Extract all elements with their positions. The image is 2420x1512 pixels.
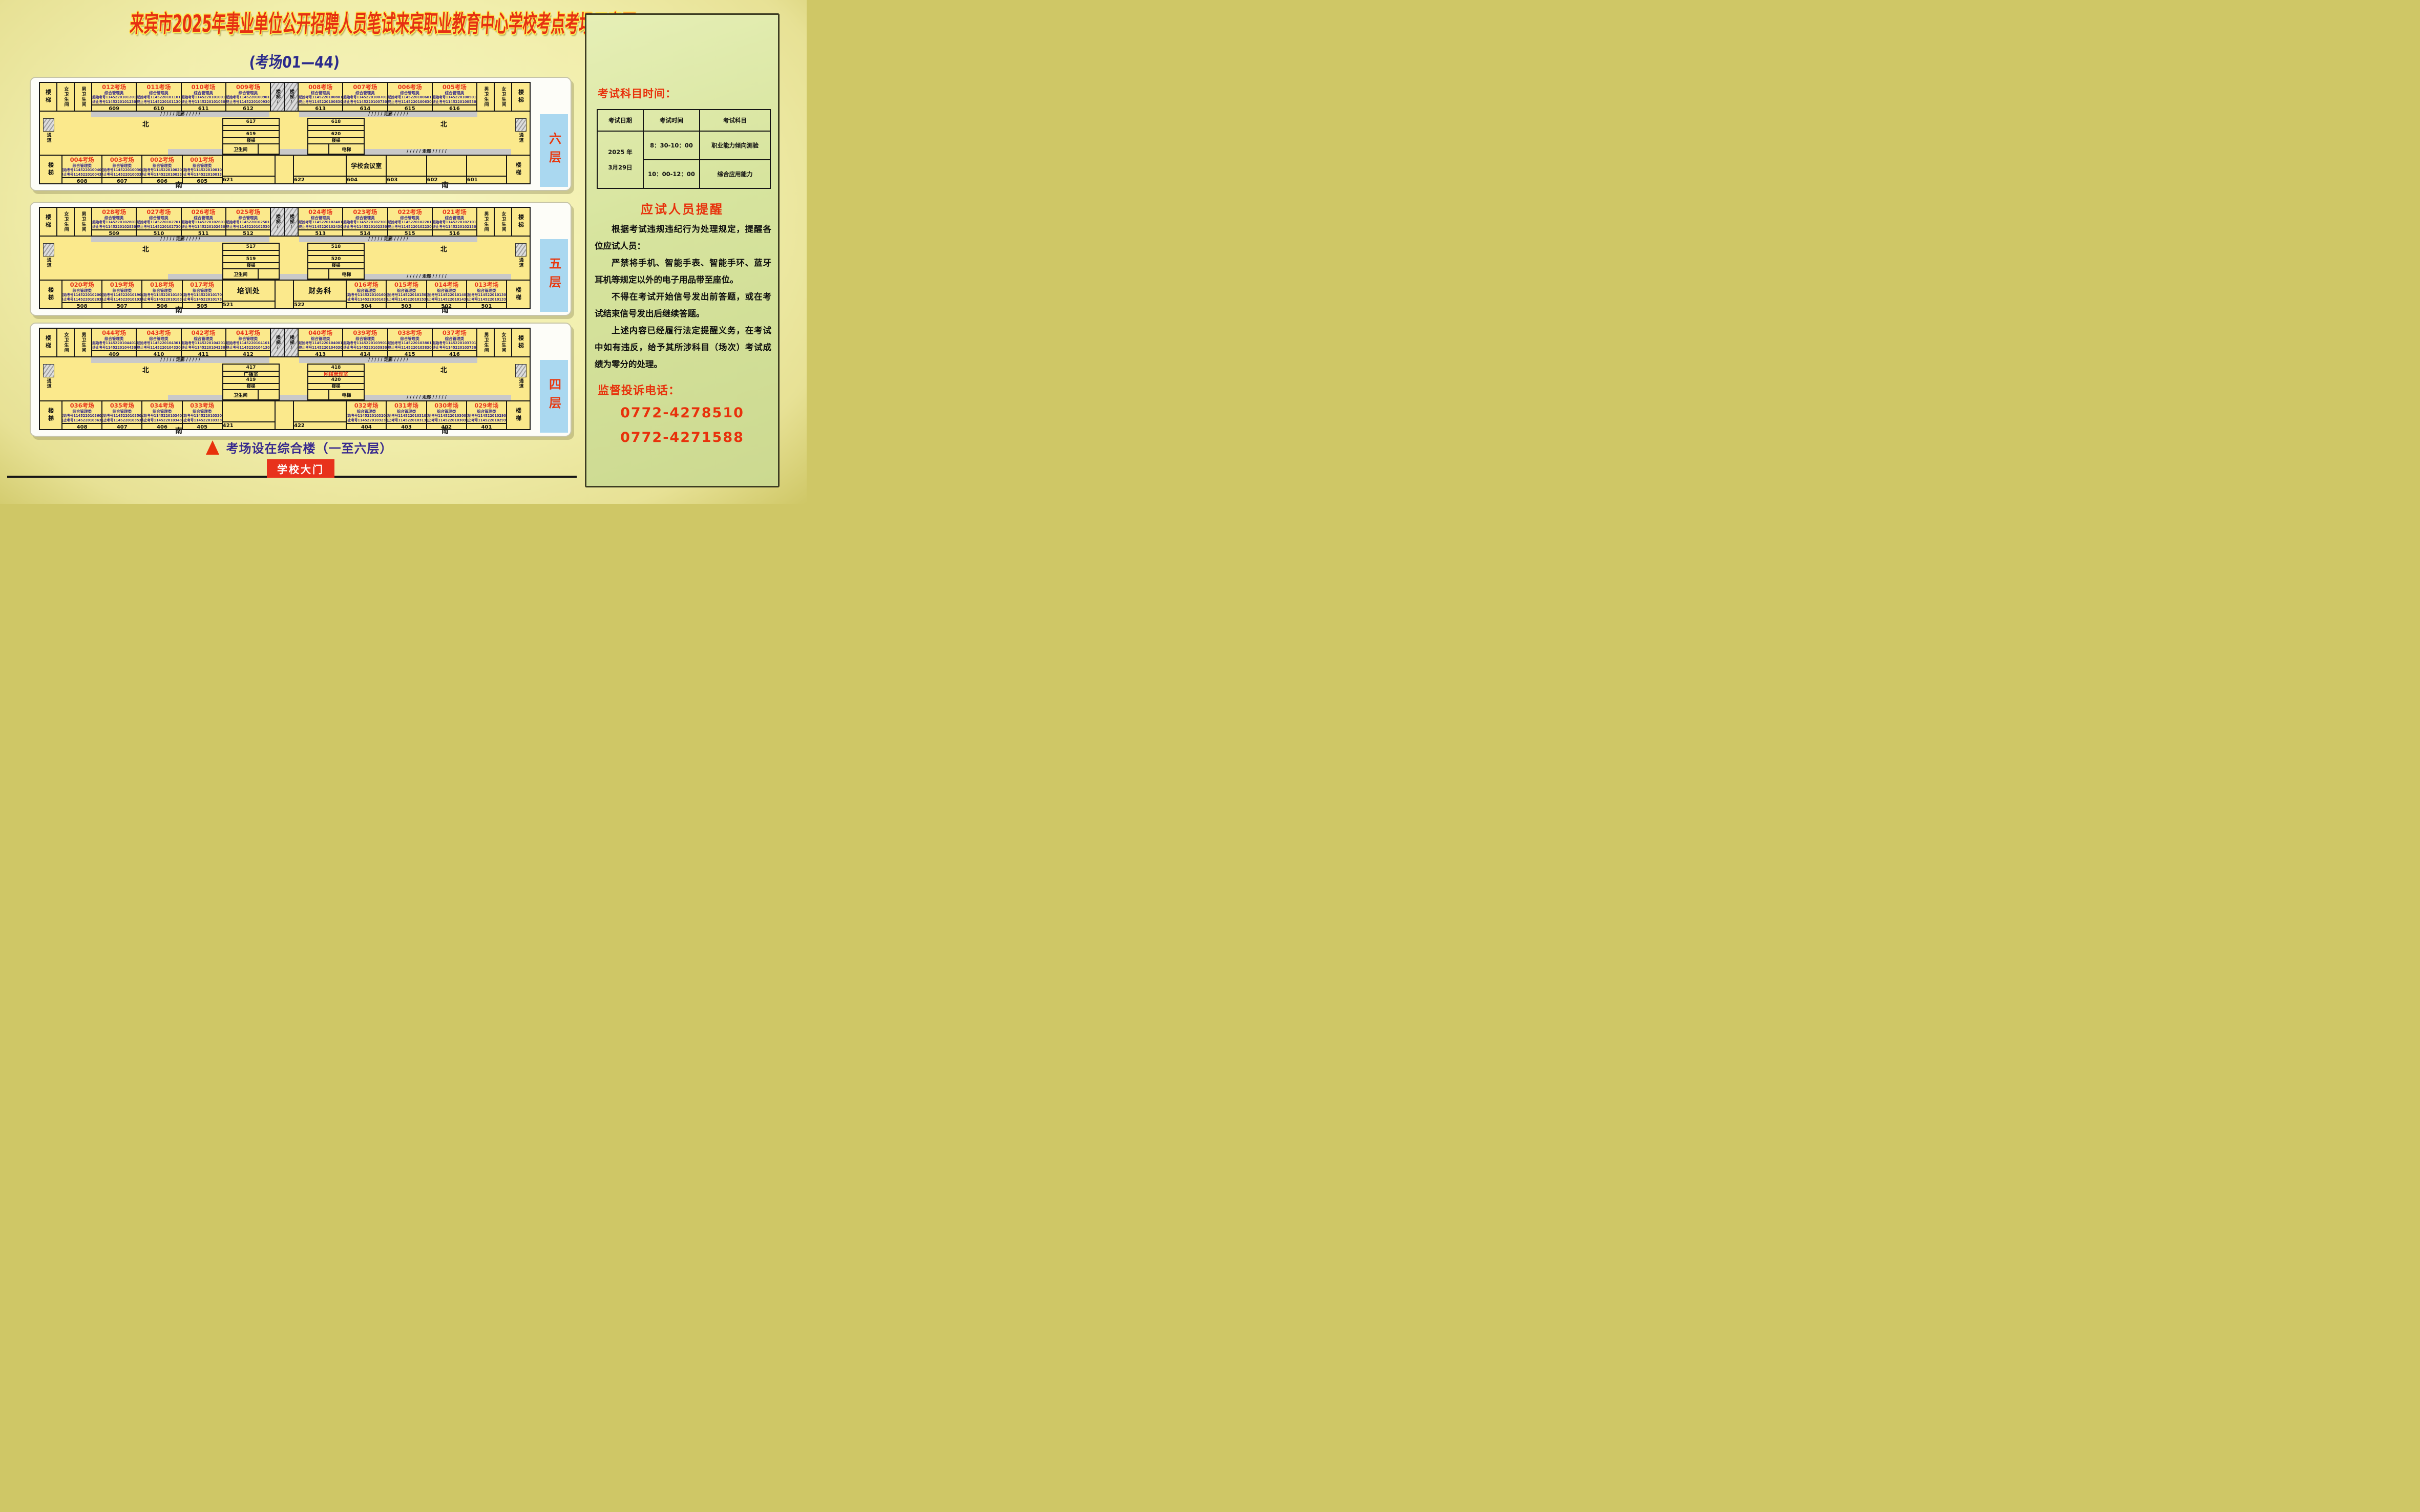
interior-block: 417广播室419楼梯卫生间 [222, 364, 280, 400]
exam-room-cell: 004考场综合管理类起始考号1145220100401终止考号114522010… [62, 156, 102, 183]
room-start-number: 起始考号1145220103201 [347, 414, 387, 418]
room-title: 032考场 [354, 402, 378, 409]
room-end-number: 终止考号1145220100530 [433, 100, 476, 104]
room-start-number: 起始考号1145220102501 [226, 220, 270, 225]
passage-cell: 通道 [40, 364, 57, 389]
exam-room-cell: 042考场综合管理类起始考号1145220104201终止考号114522010… [182, 329, 226, 356]
corridor-strip: / / / / / 走廊 / / / / / [299, 357, 477, 363]
stairs-hatch-cell-label: 楼梯/ [275, 214, 280, 230]
label-room-cell: 601 [467, 156, 507, 183]
elevator-box: 电梯 [328, 389, 365, 399]
room-end-number: 终止考号1145220104130 [226, 346, 270, 350]
room-label: 财务科 [294, 281, 346, 301]
female-wc-cell: 女卫生间 [495, 83, 512, 111]
room-start-number: 起始考号1145220100701 [343, 95, 387, 100]
exam-room-cell: 027考场综合管理类起始考号1145220102701终止考号114522010… [137, 208, 181, 236]
room-title: 023考场 [353, 209, 377, 216]
room-category: 综合管理类 [445, 91, 465, 95]
room-category: 综合管理类 [355, 91, 375, 95]
exam-room-cell: 043考场综合管理类起始考号1145220104301终止考号114522010… [137, 329, 181, 356]
room-title: 010考场 [192, 84, 216, 91]
room-label [223, 156, 275, 176]
room-label: 学校会议室 [347, 156, 386, 176]
room-end-number: 终止考号1145220101930 [102, 297, 142, 302]
female-wc-cell: 女卫生间 [57, 329, 75, 356]
reminder-paragraph: 严禁将手机、智能手表、智能手环、蓝牙耳机等规定以外的电子用品带至座位。 [595, 254, 771, 288]
passage-label: 通道 [518, 378, 524, 389]
bottom-room-row: 楼梯004考场综合管理类起始考号1145220100401终止考号1145220… [40, 155, 530, 183]
room-title: 037考场 [443, 330, 467, 336]
room-title: 025考场 [236, 209, 260, 216]
room-start-number: 起始考号1145220102801 [92, 220, 136, 225]
exam-room-cell: 012考场综合管理类起始考号1145220101201终止考号114522010… [92, 83, 137, 111]
stairs-cell-label: 楼梯 [46, 214, 51, 229]
stairs-cell-label: 楼梯 [516, 408, 521, 423]
room-number-strip: 504 [347, 302, 386, 308]
female-wc-cell-label: 女卫生间 [64, 332, 68, 353]
label-room-cell: 602 [427, 156, 467, 183]
exam-room-cell: 007考场综合管理类起始考号1145220100701终止考号114522010… [343, 83, 388, 111]
room-category: 综合管理类 [194, 336, 213, 341]
exam-room-cell: 030考场综合管理类起始考号1145220103001终止考号114522010… [427, 401, 467, 429]
passage-cell: 通道 [40, 118, 57, 143]
building-outline: 楼梯女卫生间男卫生间028考场综合管理类起始考号1145220102801终止考… [39, 207, 531, 309]
room-number-strip: 410 [137, 350, 180, 356]
floor-band: 楼梯女卫生间男卫生间012考场综合管理类起始考号1145220101201终止考… [30, 77, 572, 191]
room-title: 012考场 [102, 84, 126, 91]
room-number-strip: 522 [294, 301, 346, 308]
bottom-room-row: 楼梯036考场综合管理类起始考号1145220103601终止考号1145220… [40, 400, 530, 429]
room-end-number: 终止考号1145220100330 [102, 173, 142, 177]
room-title: 041考场 [236, 330, 260, 336]
room-label: 培训处 [223, 281, 275, 301]
exam-room-cell: 018考场综合管理类起始考号1145220101801终止考号114522010… [142, 281, 182, 308]
male-wc-cell: 男卫生间 [477, 329, 495, 356]
stairs-hatch-cell: 楼梯/ [271, 329, 285, 356]
exam-room-cell: 039考场综合管理类起始考号1145220103901终止考号114522010… [343, 329, 388, 356]
passage-cell: 通道 [513, 243, 529, 268]
room-label [294, 401, 346, 421]
exam-date-cell: 2025 年 3月29日 [597, 131, 643, 188]
room-number-strip: 608 [62, 177, 101, 183]
room-end-number: 终止考号1145220104030 [299, 346, 342, 350]
schedule-title: 考试科目时间： [598, 86, 677, 101]
stairs-cell: 楼梯 [512, 208, 530, 236]
room-category: 综合管理类 [113, 163, 132, 168]
exam-room-cell: 025考场综合管理类起始考号1145220102501终止考号114522010… [226, 208, 271, 236]
south-label: 南 [441, 425, 449, 436]
room-end-number: 终止考号1145220103130 [387, 418, 427, 423]
stairs-cell-label: 楼梯 [46, 335, 51, 350]
block-room-number: 620 [308, 131, 364, 138]
room-number-strip: 607 [102, 177, 141, 183]
room-category: 综合管理类 [400, 91, 419, 95]
room-number-strip: 515 [388, 229, 432, 236]
room-end-number: 终止考号1145220102530 [226, 225, 270, 229]
exam-room-cell: 038考场综合管理类起始考号1145220103801终止考号114522010… [388, 329, 433, 356]
room-number-strip: 407 [102, 423, 141, 429]
room-title: 020考场 [70, 282, 94, 288]
room-end-number: 终止考号1145220101430 [427, 297, 467, 302]
room-end-number: 终止考号1145220103630 [62, 418, 102, 423]
label-room-cell: 422 [294, 401, 347, 429]
room-number-strip: 405 [183, 423, 222, 429]
room-title: 015考场 [394, 282, 418, 288]
room-number-strip: 409 [92, 350, 136, 356]
passage-cell: 通道 [40, 243, 57, 268]
room-title: 001考场 [190, 157, 214, 163]
room-start-number: 起始考号1145220101201 [92, 95, 136, 100]
room-start-number: 起始考号1145220103001 [427, 414, 467, 418]
header-exam-subject: 考试科目 [700, 110, 770, 131]
room-number-strip: 401 [467, 423, 506, 429]
room-start-number: 起始考号1145220103601 [62, 414, 102, 418]
room-end-number: 终止考号1145220103530 [102, 418, 142, 423]
block-mid-label [308, 251, 364, 256]
passage-label: 通道 [46, 258, 52, 268]
room-number-strip: 411 [182, 350, 225, 356]
room-category: 综合管理类 [104, 216, 124, 220]
room-end-number: 终止考号1145220103230 [347, 418, 387, 423]
room-end-number: 终止考号1145220103730 [433, 346, 476, 350]
info-panel: 考试科目时间： 考试日期 考试时间 考试科目 2025 年 3月29日 8：30… [585, 13, 780, 487]
block-corner-row: 卫生间 [223, 269, 279, 279]
room-number-strip: 412 [226, 350, 270, 356]
room-title: 018考场 [150, 282, 174, 288]
open-gap-cell [276, 401, 294, 429]
room-start-number: 起始考号1145220104301 [137, 341, 180, 346]
header-exam-date: 考试日期 [597, 110, 643, 131]
floor-number-bar: 五层 [540, 239, 568, 312]
room-title: 028考场 [102, 209, 126, 216]
room-title: 009考场 [236, 84, 260, 91]
exam-room-cell: 021考场综合管理类起始考号1145220102101终止考号114522010… [433, 208, 477, 236]
room-end-number: 终止考号1145220100830 [299, 100, 342, 104]
room-start-number: 起始考号1145220104201 [182, 341, 225, 346]
block-room-number: 420 [308, 377, 364, 384]
room-end-number: 终止考号1145220100230 [142, 173, 182, 177]
room-start-number: 起始考号1145220102901 [467, 414, 507, 418]
room-start-number: 起始考号1145220100101 [183, 168, 223, 173]
passage-hatch [515, 364, 527, 377]
exam-room-cell: 031考场综合管理类起始考号1145220103101终止考号114522010… [387, 401, 427, 429]
room-number-strip: 611 [182, 104, 225, 111]
south-label: 南 [175, 180, 182, 190]
room-number-strip: 610 [137, 104, 180, 111]
room-end-number: 终止考号1145220100630 [388, 100, 432, 104]
exam-room-cell: 037考场综合管理类起始考号1145220103701终止考号114522010… [433, 329, 477, 356]
room-category: 综合管理类 [193, 288, 212, 293]
room-category: 综合管理类 [239, 336, 258, 341]
room-end-number: 终止考号1145220102730 [137, 225, 180, 229]
male-wc-cell-label: 男卫生间 [81, 87, 86, 107]
exam-room-cell: 008考场综合管理类起始考号1145220100801终止考号114522010… [299, 83, 343, 111]
male-wc-cell-label: 男卫生间 [483, 87, 488, 107]
room-number-strip: 614 [343, 104, 387, 111]
room-number-strip: 603 [387, 176, 426, 183]
room-category: 综合管理类 [311, 91, 330, 95]
room-title: 027考场 [146, 209, 171, 216]
reminder-title: 应试人员提醒 [586, 199, 778, 217]
room-number-strip: 507 [102, 302, 141, 308]
female-wc-cell-label: 女卫生间 [64, 211, 68, 232]
room-category: 综合管理类 [104, 336, 124, 341]
room-category: 综合管理类 [311, 336, 330, 341]
middle-zone: / / / / / 走廊 / / / / // / / / / 走廊 / / /… [40, 237, 530, 280]
room-title: 036考场 [70, 402, 94, 409]
room-end-number: 终止考号1145220102630 [182, 225, 225, 229]
room-start-number: 起始考号1145220101701 [183, 293, 223, 297]
complaint-phone-title: 监督投诉电话： [598, 381, 680, 398]
room-title: 040考场 [308, 330, 332, 336]
exam-subject-cell: 综合应用能力 [700, 160, 770, 188]
label-room-cell: 603 [387, 156, 427, 183]
room-number-strip: 601 [467, 176, 506, 183]
room-category: 综合管理类 [193, 163, 212, 168]
stairs-cell-label: 楼梯 [518, 89, 524, 104]
room-label [223, 401, 275, 421]
north-label: 北 [440, 365, 447, 374]
label-room-cell: 财务科522 [294, 281, 347, 308]
room-category: 综合管理类 [400, 336, 419, 341]
stairs-cell-label: 楼梯 [516, 287, 521, 302]
bottom-room-row: 楼梯020考场综合管理类起始考号1145220102001终止考号1145220… [40, 280, 530, 308]
stairs-cell-label: 楼梯 [518, 214, 524, 229]
male-wc-cell: 男卫生间 [477, 83, 495, 111]
top-room-row: 楼梯女卫生间男卫生间012考场综合管理类起始考号1145220101201终止考… [40, 83, 530, 112]
male-wc-cell-label: 男卫生间 [81, 211, 86, 232]
passage-label: 通道 [518, 133, 524, 143]
room-title: 030考场 [434, 402, 458, 409]
floor-number-bar: 六层 [540, 114, 568, 187]
room-start-number: 起始考号1145220101501 [387, 293, 427, 297]
room-category: 综合管理类 [149, 336, 169, 341]
exam-room-cell: 032考场综合管理类起始考号1145220103201终止考号114522010… [347, 401, 387, 429]
exam-room-cell: 011考场综合管理类起始考号1145220101101终止考号114522010… [137, 83, 181, 111]
room-start-number: 起始考号1145220103501 [102, 414, 142, 418]
room-start-number: 起始考号1145220102701 [137, 220, 180, 225]
exam-venue-poster: 来宾市2025年事业单位公开招聘人员笔试来宾职业教育中心学校考点考场示意图 (考… [0, 0, 807, 504]
passage-label: 通道 [46, 133, 52, 143]
room-number-strip: 612 [226, 104, 270, 111]
room-end-number: 终止考号1145220104430 [92, 346, 136, 350]
room-title: 021考场 [443, 209, 467, 216]
room-title: 022考场 [398, 209, 422, 216]
stairs-hatch-cell-label: 楼梯/ [275, 89, 280, 105]
interior-block: 517519楼梯卫生间 [222, 243, 280, 280]
room-start-number: 起始考号1145220101601 [347, 293, 387, 297]
exam-room-cell: 035考场综合管理类起始考号1145220103501终止考号114522010… [102, 401, 142, 429]
room-end-number: 终止考号1145220102030 [62, 297, 102, 302]
room-number-strip: 613 [299, 104, 342, 111]
stairs-cell-label: 楼梯 [48, 287, 54, 302]
room-title: 033考场 [190, 402, 214, 409]
room-start-number: 起始考号1145220103701 [433, 341, 476, 346]
stairs-cell-label: 楼梯 [48, 162, 54, 177]
female-wc-cell: 女卫生间 [495, 329, 512, 356]
block-corner-row: 卫生间 [223, 390, 279, 399]
block-room-number: 618 [308, 119, 364, 126]
room-end-number: 终止考号1145220100430 [62, 173, 102, 177]
room-start-number: 起始考号1145220104101 [226, 341, 270, 346]
floor-band: 楼梯女卫生间男卫生间044考场综合管理类起始考号1145220104401终止考… [30, 323, 572, 437]
passage-label: 通道 [46, 378, 52, 389]
stairs-cell: 楼梯 [512, 83, 530, 111]
exam-room-cell: 044考场综合管理类起始考号1145220104401终止考号114522010… [92, 329, 137, 356]
room-start-number: 起始考号1145220101901 [102, 293, 142, 297]
block-corner-row: 卫生间 [223, 144, 279, 154]
exam-room-cell: 028考场综合管理类起始考号1145220102801终止考号114522010… [92, 208, 137, 236]
north-label: 北 [142, 119, 149, 129]
room-label [427, 156, 466, 176]
room-number-strip: 415 [388, 350, 432, 356]
passage-hatch [515, 243, 527, 257]
room-number-strip: 514 [343, 229, 387, 236]
exam-room-cell: 029考场综合管理类起始考号1145220102901终止考号114522010… [467, 401, 507, 429]
exam-room-cell: 010考场综合管理类起始考号1145220101001终止考号114522010… [182, 83, 226, 111]
room-category: 综合管理类 [149, 216, 169, 220]
room-category: 综合管理类 [355, 216, 375, 220]
room-start-number: 起始考号1145220103301 [183, 414, 223, 418]
passage-label: 通道 [518, 258, 524, 268]
north-label: 北 [142, 244, 149, 253]
room-category: 综合管理类 [239, 91, 258, 95]
room-end-number: 终止考号1145220103430 [142, 418, 182, 423]
room-category: 综合管理类 [153, 409, 172, 414]
room-start-number: 起始考号1145220103101 [387, 414, 427, 418]
building-outline: 楼梯女卫生间男卫生间044考场综合管理类起始考号1145220104401终止考… [39, 328, 531, 430]
room-end-number: 终止考号1145220102330 [343, 225, 387, 229]
female-wc-cell-label: 女卫生间 [501, 332, 506, 353]
exam-room-cell: 005考场综合管理类起始考号1145220100501终止考号114522010… [433, 83, 477, 111]
corridor-strip: / / / / / 走廊 / / / / / [91, 357, 269, 363]
room-title: 038考场 [398, 330, 422, 336]
exam-room-cell: 020考场综合管理类起始考号1145220102001终止考号114522010… [62, 281, 102, 308]
open-gap-cell [276, 156, 294, 183]
stairs-cell: 楼梯 [40, 281, 62, 308]
room-start-number: 起始考号1145220100601 [388, 95, 432, 100]
room-category: 综合管理类 [194, 216, 213, 220]
passage-hatch [43, 118, 54, 132]
exam-room-cell: 026考场综合管理类起始考号1145220102601终止考号114522010… [182, 208, 226, 236]
middle-zone: / / / / / 走廊 / / / / // / / / / 走廊 / / /… [40, 357, 530, 400]
room-number-strip: 403 [387, 423, 426, 429]
exam-room-cell: 034考场综合管理类起始考号1145220103401终止考号114522010… [142, 401, 182, 429]
room-number-strip: 604 [347, 176, 386, 183]
room-category: 综合管理类 [72, 409, 92, 414]
room-category: 综合管理类 [72, 163, 92, 168]
stairs-hatch-cell-label: 楼梯/ [289, 335, 293, 351]
room-number-strip: 416 [433, 350, 476, 356]
exam-room-cell: 006考场综合管理类起始考号1145220100601终止考号114522010… [388, 83, 433, 111]
corridor-strip: / / / / / 走廊 / / / / / [342, 274, 511, 280]
floor-number-label: 五层 [548, 257, 560, 294]
female-wc-cell-label: 女卫生间 [501, 211, 506, 232]
exam-time-cell: 8：30-10：00 [643, 131, 700, 160]
stairs-cell-label: 楼梯 [516, 162, 521, 177]
room-title: 007考场 [353, 84, 377, 91]
room-title: 003考场 [110, 157, 134, 163]
room-start-number: 起始考号1145220100401 [62, 168, 102, 173]
room-number-strip: 510 [137, 229, 180, 236]
room-end-number: 终止考号1145220102130 [433, 225, 476, 229]
room-number-strip: 508 [62, 302, 101, 308]
table-row: 2025 年 3月29日 8：30-10：00 职业能力倾向测验 [597, 131, 770, 160]
block-mid-label [223, 251, 279, 256]
room-title: 008考场 [308, 84, 332, 91]
room-start-number: 起始考号1145220102301 [343, 220, 387, 225]
stairs-cell-label: 楼梯 [48, 408, 54, 423]
stairs-cell: 楼梯 [40, 83, 57, 111]
complaint-phone-number: 0772-4271588 [586, 430, 778, 445]
room-start-number: 起始考号1145220104001 [299, 341, 342, 346]
room-title: 026考场 [192, 209, 216, 216]
room-number-strip: 414 [343, 350, 387, 356]
room-title: 039考场 [353, 330, 377, 336]
room-end-number: 终止考号1145220101330 [467, 297, 507, 302]
room-category: 综合管理类 [194, 91, 213, 95]
room-category: 综合管理类 [311, 216, 330, 220]
reminder-paragraph: 上述内容已经履行法定提醒义务，在考试中如有违反，给予其所涉科目（场次）考试成绩为… [595, 322, 771, 373]
room-start-number: 起始考号1145220102201 [388, 220, 432, 225]
exam-date-line2: 3月29日 [598, 160, 643, 175]
reminder-paragraphs: 根据考试违规违纪行为处理规定，提醒各位应试人员： 严禁将手机、智能手表、智能手环… [595, 221, 771, 373]
room-category: 综合管理类 [400, 216, 419, 220]
stairs-cell: 楼梯 [507, 401, 530, 429]
room-start-number: 起始考号1145220101401 [427, 293, 467, 297]
label-room-cell: 622 [294, 156, 347, 183]
room-title: 029考场 [474, 402, 498, 409]
top-room-row: 楼梯女卫生间男卫生间044考场综合管理类起始考号1145220104401终止考… [40, 329, 530, 357]
corridor-strip: / / / / / 走廊 / / / / / [91, 112, 269, 117]
stairs-hatch-cell: 楼梯/ [271, 208, 285, 236]
room-title: 017考场 [190, 282, 214, 288]
block-mid-label: 广播室 [223, 372, 279, 377]
room-number-strip: 615 [388, 104, 432, 111]
room-number-strip: 609 [92, 104, 136, 111]
male-wc-cell: 男卫生间 [477, 208, 495, 236]
room-number-strip: 521 [223, 301, 275, 308]
room-start-number: 起始考号1145220100201 [142, 168, 182, 173]
corridor-strip: / / / / / 走廊 / / / / / [299, 237, 477, 242]
room-category: 综合管理类 [355, 336, 375, 341]
middle-zone: / / / / / 走廊 / / / / // / / / / 走廊 / / /… [40, 112, 530, 155]
room-end-number: 终止考号1145220100730 [343, 100, 387, 104]
exam-room-cell: 036考场综合管理类起始考号1145220103601终止考号114522010… [62, 401, 102, 429]
room-number-strip: 516 [433, 229, 476, 236]
room-category: 综合管理类 [72, 288, 92, 293]
room-end-number: 终止考号1145220103330 [183, 418, 223, 423]
toilet-box: 卫生间 [222, 143, 259, 154]
toilet-box: 卫生间 [222, 268, 259, 279]
corridor-strip: / / / / / 走廊 / / / / / [91, 237, 269, 242]
stairs-cell-label: 楼梯 [46, 89, 51, 104]
interior-block: 418网络管理室420楼梯电梯 [307, 364, 365, 400]
room-label [387, 156, 426, 176]
female-wc-cell-label: 女卫生间 [64, 87, 68, 107]
room-end-number: 终止考号1145220101030 [182, 100, 225, 104]
room-start-number: 起始考号1145220101101 [137, 95, 180, 100]
exam-room-cell: 041考场综合管理类起始考号1145220104101终止考号114522010… [226, 329, 271, 356]
exam-time-cell: 10：00-12：00 [643, 160, 700, 188]
male-wc-cell: 男卫生间 [75, 208, 92, 236]
room-number-strip: 505 [183, 302, 222, 308]
room-number-strip: 622 [294, 176, 346, 183]
exam-room-cell: 040考场综合管理类起始考号1145220104001终止考号114522010… [299, 329, 343, 356]
room-start-number: 起始考号1145220102001 [62, 293, 102, 297]
room-title: 024考场 [308, 209, 332, 216]
block-room-number: 419 [223, 377, 279, 384]
